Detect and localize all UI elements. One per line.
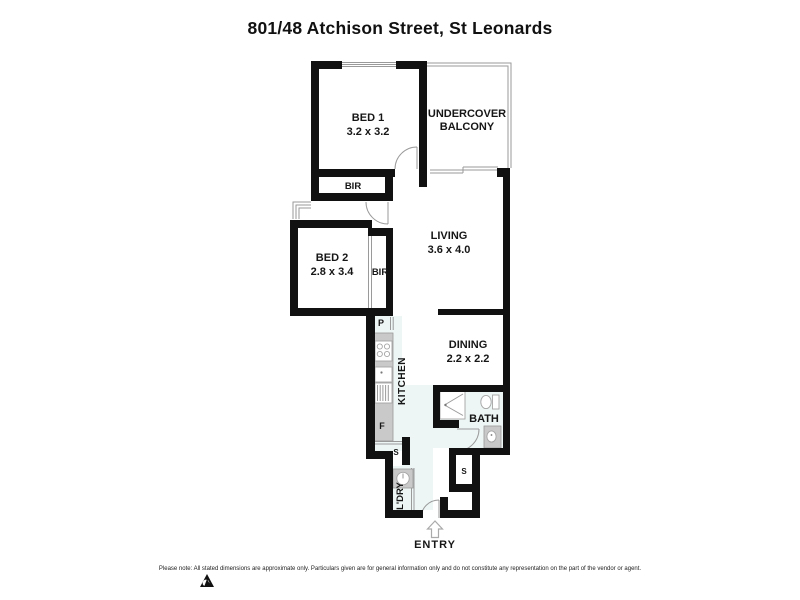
room-label-balcony-line2: BALCONY	[440, 121, 495, 133]
room-dims-dining: 2.2 x 2.2	[447, 353, 490, 365]
footer-disclaimer: Please note: All stated dimensions are a…	[0, 566, 800, 572]
label-store-kitchen: S	[393, 448, 399, 457]
label-bir-bed1: BIR	[345, 181, 362, 192]
entry-arrow-icon	[428, 521, 443, 538]
label-bir-bed2: BIR	[372, 267, 389, 278]
room-label-balcony-line1: UNDERCOVER	[428, 108, 506, 120]
floorplan-page: 801/48 Atchison Street, St Leonards	[0, 0, 800, 600]
basin-icon	[484, 426, 501, 448]
room-label-dining: DINING	[449, 339, 488, 351]
cooktop-icon	[375, 341, 392, 361]
room-label-entry: ENTRY	[414, 539, 456, 551]
room-label-bed1: BED 1	[352, 112, 384, 124]
room-dims-bed1: 3.2 x 3.2	[347, 126, 390, 138]
toilet-icon	[481, 395, 499, 409]
room-label-bed2: BED 2	[316, 252, 348, 264]
room-label-laundry: L'DRY	[395, 481, 406, 509]
sink-icon	[375, 367, 392, 403]
agency-logo-icon	[199, 573, 215, 589]
room-dims-bed2: 2.8 x 3.4	[311, 266, 355, 278]
floorplan-drawing: BED 1 3.2 x 3.2 UNDERCOVER BALCONY BIR B…	[0, 0, 800, 600]
room-label-kitchen: KITCHEN	[397, 357, 408, 405]
label-fridge: F	[379, 421, 385, 431]
room-label-bath: BATH	[469, 413, 499, 425]
shower-icon	[440, 391, 465, 419]
label-pantry: P	[378, 318, 384, 328]
label-store-hall: S	[461, 467, 467, 476]
room-label-living: LIVING	[431, 230, 468, 242]
room-dims-living: 3.6 x 4.0	[428, 244, 471, 256]
